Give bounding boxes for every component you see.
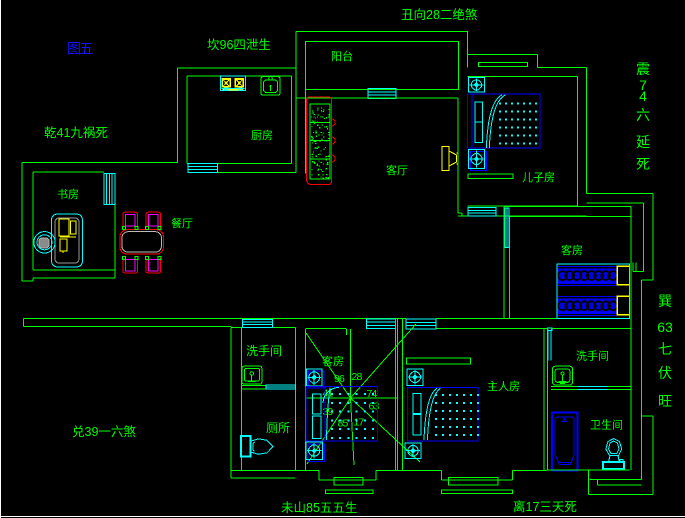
svg-text:卫生间: 卫生间 — [590, 418, 623, 432]
svg-text:厨房: 厨房 — [251, 129, 273, 142]
svg-text:书房: 书房 — [57, 188, 79, 201]
svg-text:儿子房: 儿子房 — [522, 171, 555, 184]
svg-text:离17三天死: 离17三天死 — [513, 499, 577, 514]
svg-text:厕所: 厕所 — [266, 421, 290, 435]
svg-text:主人房: 主人房 — [487, 380, 520, 393]
svg-text:63: 63 — [657, 319, 673, 335]
svg-text:兑39一六煞: 兑39一六煞 — [72, 425, 136, 439]
svg-text:洗手间: 洗手间 — [576, 349, 609, 363]
svg-text:17: 17 — [354, 417, 365, 429]
svg-text:坎96四泄生: 坎96四泄生 — [207, 38, 271, 52]
svg-text:震: 震 — [636, 61, 650, 77]
svg-text:28: 28 — [352, 371, 363, 383]
svg-text:丑向28二绝煞: 丑向28二绝煞 — [401, 7, 478, 22]
svg-text:客厅: 客厅 — [386, 163, 408, 177]
svg-text:伏: 伏 — [658, 365, 672, 381]
svg-text:96: 96 — [334, 373, 345, 385]
svg-text:洗手间: 洗手间 — [246, 344, 282, 358]
svg-text:未山85五五生: 未山85五五生 — [281, 501, 357, 515]
svg-text:图五: 图五 — [67, 41, 93, 57]
svg-text:旺: 旺 — [658, 393, 672, 409]
svg-text:延: 延 — [636, 134, 650, 150]
svg-text:阳台: 阳台 — [331, 49, 353, 63]
svg-text:餐厅: 餐厅 — [171, 216, 193, 230]
svg-text:巽: 巽 — [658, 293, 672, 309]
svg-text:4: 4 — [639, 88, 647, 104]
svg-text:客房: 客房 — [561, 243, 583, 257]
svg-text:六: 六 — [636, 107, 650, 123]
svg-text:85: 85 — [338, 418, 349, 430]
svg-text:七: 七 — [658, 341, 672, 357]
svg-text:死: 死 — [636, 156, 650, 172]
svg-text:乾41九祸死: 乾41九祸死 — [44, 125, 108, 140]
